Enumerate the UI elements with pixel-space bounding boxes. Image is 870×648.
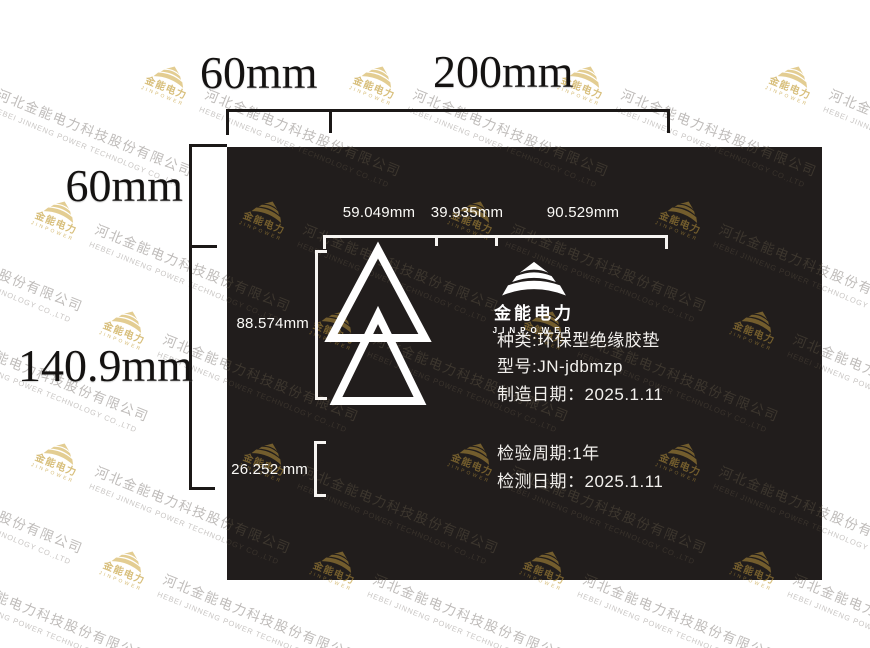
watermark-tile: 金能电力JINPOWER河北金能电力科技股份有限公司HEBEI JINNENG … bbox=[227, 147, 406, 193]
watermark-company-en: HEBEI JINNENG POWER TECHNOLOGY CO.,LTD bbox=[406, 147, 604, 192]
watermark-company-cn: 河北金能电力科技股份有限公司 bbox=[227, 147, 405, 180]
watermark-company-en: HEBEI JINNENG POWER TECHNOLOGY CO.,LTD bbox=[227, 482, 286, 569]
watermark-logo-en: JINPOWER bbox=[764, 85, 809, 108]
watermark-logo-en: JINPOWER bbox=[446, 462, 491, 485]
dim-label-side-140mm: 140.9mm bbox=[18, 341, 182, 391]
watermark-text: 河北金能电力科技股份有限公司HEBEI JINNENG POWER TECHNO… bbox=[227, 565, 364, 580]
dim-tick bbox=[189, 144, 227, 147]
watermark-mountain-icon bbox=[38, 435, 84, 468]
dim-label-90mm: 90.529mm bbox=[533, 204, 633, 222]
watermark-company-en: HEBEI JINNENG POWER TECHNOLOGY CO.,LTD bbox=[156, 590, 354, 648]
watermark-text: 河北金能电力科技股份有限公司HEBEI JINNENG POWER TECHNO… bbox=[0, 215, 88, 326]
watermark-logo: 金能电力JINPOWER bbox=[135, 55, 202, 110]
watermark-tile: 金能电力JINPOWER河北金能电力科技股份有限公司HEBEI JINNENG … bbox=[0, 432, 88, 570]
watermark-company-en: HEBEI JINNENG POWER TECHNOLOGY CO.,LTD bbox=[0, 590, 144, 648]
watermark-company-cn: 河北金能电力科技股份有限公司 bbox=[716, 218, 822, 315]
watermark-company-en: HEBEI JINNENG POWER TECHNOLOGY CO.,LTD bbox=[822, 105, 870, 192]
watermark-company-en: HEBEI JINNENG POWER TECHNOLOGY CO.,LTD bbox=[712, 240, 822, 327]
watermark-logo-en: JINPOWER bbox=[30, 462, 75, 485]
watermark-company-en: HEBEI JINNENG POWER TECHNOLOGY CO.,LTD bbox=[227, 240, 286, 327]
dim-tick bbox=[329, 109, 332, 133]
watermark-logo-cn: 金能电力 bbox=[731, 560, 776, 580]
watermark-tile: 金能电力JINPOWER河北金能电力科技股份有限公司HEBEI JINNENG … bbox=[759, 147, 822, 193]
watermark-logo-cn: 金能电力 bbox=[33, 210, 78, 237]
watermark-logo-en: JINPOWER bbox=[728, 570, 773, 580]
dim-tick bbox=[495, 235, 498, 246]
spec-line-test-date: 检测日期：2025.1.11 bbox=[497, 472, 663, 492]
watermark-text: 河北金能电力科技股份有限公司HEBEI JINNENG POWER TECHNO… bbox=[822, 80, 870, 191]
watermark-company-cn: 河北金能电力科技股份有限公司 bbox=[300, 460, 502, 557]
brand-logo: 金能电力 JINPOWER bbox=[484, 261, 584, 335]
dim-label-59mm: 59.049mm bbox=[329, 204, 429, 222]
watermark-company-cn: 河北金能电力科技股份有限公司 bbox=[580, 568, 782, 648]
watermark-company-en: HEBEI JINNENG POWER TECHNOLOGY CO.,LTD bbox=[576, 590, 774, 648]
watermark-logo-cn: 金能电力 bbox=[449, 452, 494, 479]
watermark-logo: 金能电力JINPOWER bbox=[513, 540, 580, 580]
watermark-logo-cn: 金能电力 bbox=[101, 560, 146, 587]
watermark-company-en: HEBEI JINNENG POWER TECHNOLOGY CO.,LTD bbox=[712, 482, 822, 569]
watermark-company-cn: 河北金能电力科技股份有限公司 bbox=[0, 460, 87, 557]
watermark-company-cn: 河北金能电力科技股份有限公司 bbox=[790, 328, 822, 425]
watermark-logo: 金能电力JINPOWER bbox=[303, 540, 370, 580]
mountain-icon bbox=[492, 261, 576, 298]
watermark-text: 河北金能电力科技股份有限公司HEBEI JINNENG POWER TECHNO… bbox=[0, 565, 154, 648]
dim-label-top-200mm: 200mm bbox=[433, 47, 569, 97]
double-triangle-symbol bbox=[317, 237, 442, 412]
watermark-text: 河北金能电力科技股份有限公司HEBEI JINNENG POWER TECHNO… bbox=[366, 565, 574, 580]
watermark-logo-en: JINPOWER bbox=[446, 220, 491, 243]
watermark-text: 河北金能电力科技股份有限公司HEBEI JINNENG POWER TECHNO… bbox=[296, 457, 504, 568]
watermark-logo-cn: 金能电力 bbox=[767, 75, 812, 102]
watermark-logo-cn: 金能电力 bbox=[351, 75, 396, 102]
watermark-company-cn: 河北金能电力科技股份有限公司 bbox=[826, 83, 870, 180]
watermark-logo: 金能电力JINPOWER bbox=[723, 540, 790, 580]
watermark-mountain-icon bbox=[246, 193, 292, 226]
mat-label-sheet: 金能电力JINPOWER河北金能电力科技股份有限公司HEBEI JINNENG … bbox=[227, 147, 822, 580]
watermark-mountain-icon bbox=[662, 193, 708, 226]
watermark-logo-cn: 金能电力 bbox=[657, 210, 702, 237]
watermark-company-cn: 河北金能电力科技股份有限公司 bbox=[410, 147, 612, 180]
watermark-text: 河北金能电力科技股份有限公司HEBEI JINNENG POWER TECHNO… bbox=[712, 215, 822, 326]
watermark-tile: 金能电力JINPOWER河北金能电力科技股份有限公司HEBEI JINNENG … bbox=[649, 190, 822, 328]
watermark-logo: 金能电力JINPOWER bbox=[343, 55, 410, 110]
watermark-logo-en: JINPOWER bbox=[238, 220, 283, 243]
watermark-logo-cn: 金能电力 bbox=[521, 560, 566, 580]
watermark-logo-en: JINPOWER bbox=[30, 220, 75, 243]
dim-label-side-60mm: 60mm bbox=[60, 161, 183, 211]
watermark-mountain-icon bbox=[148, 58, 194, 91]
watermark-logo-en: JINPOWER bbox=[98, 570, 143, 593]
watermark-mountain-icon bbox=[736, 543, 782, 576]
dim-line bbox=[226, 109, 670, 112]
watermark-tile: 金能电力JINPOWER河北金能电力科技股份有限公司HEBEI JINNENG … bbox=[0, 540, 154, 648]
dim-tick bbox=[667, 109, 670, 133]
watermark-logo-cn: 金能电力 bbox=[657, 452, 702, 479]
watermark-text: 河北金能电力科技股份有限公司HEBEI JINNENG POWER TECHNO… bbox=[712, 457, 822, 568]
watermark-text: 河北金能电力科技股份有限公司HEBEI JINNENG POWER TECHNO… bbox=[406, 147, 614, 192]
watermark-mountain-icon bbox=[772, 58, 818, 91]
watermark-logo-en: JINPOWER bbox=[308, 570, 353, 580]
watermark-logo-en: JINPOWER bbox=[348, 85, 393, 108]
dim-label-26mm: 26.252 mm bbox=[227, 461, 308, 479]
watermark-logo-cn: 金能电力 bbox=[33, 452, 78, 479]
watermark-mountain-icon bbox=[662, 435, 708, 468]
watermark-tile: 金能电力JINPOWER河北金能电力科技股份有限公司HEBEI JINNENG … bbox=[723, 540, 822, 580]
spec-line-type: 种类:环保型绝缘胶垫 bbox=[497, 331, 660, 351]
watermark-mountain-icon bbox=[106, 303, 152, 336]
watermark-logo: 金能电力JINPOWER bbox=[233, 190, 300, 245]
watermark-mountain-icon bbox=[454, 435, 500, 468]
watermark-text: 河北金能电力科技股份有限公司HEBEI JINNENG POWER TECHNO… bbox=[786, 325, 822, 436]
watermark-company-cn: 河北金能电力科技股份有限公司 bbox=[0, 218, 87, 315]
dim-tick bbox=[226, 109, 229, 135]
watermark-company-en: HEBEI JINNENG POWER TECHNOLOGY CO.,LTD bbox=[366, 590, 564, 648]
dim-tick bbox=[314, 441, 326, 444]
label-spec-drawing: 金能电力JINPOWER河北金能电力科技股份有限公司HEBEI JINNENG … bbox=[0, 0, 870, 648]
dim-label-39mm: 39.935mm bbox=[417, 204, 517, 222]
watermark-tile: 金能电力JINPOWER河北金能电力科技股份有限公司HEBEI JINNENG … bbox=[723, 300, 822, 438]
watermark-logo-cn: 金能电力 bbox=[241, 210, 286, 237]
watermark-logo-en: JINPOWER bbox=[518, 570, 563, 580]
watermark-tile: 金能电力JINPOWER河北金能电力科技股份有限公司HEBEI JINNENG … bbox=[513, 540, 784, 580]
watermark-company-en: HEBEI JINNENG POWER TECHNOLOGY CO.,LTD bbox=[0, 240, 78, 327]
watermark-tile: 金能电力JINPOWER河北金能电力科技股份有限公司HEBEI JINNENG … bbox=[551, 147, 822, 193]
dim-label-top-60mm: 60mm bbox=[200, 48, 315, 98]
watermark-logo: 金能电力JINPOWER bbox=[723, 300, 790, 355]
watermark-company-cn: 河北金能电力科技股份有限公司 bbox=[227, 218, 295, 315]
watermark-tile: 金能电力JINPOWER河北金能电力科技股份有限公司HEBEI JINNENG … bbox=[343, 147, 614, 193]
watermark-tile: 金能电力JINPOWER河北金能电力科技股份有限公司HEBEI JINNENG … bbox=[649, 432, 822, 570]
watermark-tile: 金能电力JINPOWER河北金能电力科技股份有限公司HEBEI JINNENG … bbox=[233, 432, 504, 570]
dim-tick bbox=[314, 494, 326, 497]
watermark-company-cn: 河北金能电力科技股份有限公司 bbox=[370, 568, 572, 648]
watermark-company-en: HEBEI JINNENG POWER TECHNOLOGY CO.,LTD bbox=[614, 147, 812, 192]
watermark-logo-en: JINPOWER bbox=[728, 330, 773, 353]
watermark-logo-cn: 金能电力 bbox=[731, 320, 776, 347]
watermark-text: 河北金能电力科技股份有限公司HEBEI JINNENG POWER TECHNO… bbox=[227, 147, 406, 192]
watermark-company-cn: 河北金能电力科技股份有限公司 bbox=[370, 568, 572, 580]
watermark-tile: 金能电力JINPOWER河北金能电力科技股份有限公司HEBEI JINNENG … bbox=[227, 432, 296, 570]
dim-label-88mm: 88.574mm bbox=[229, 315, 309, 333]
watermark-logo: 金能电力JINPOWER bbox=[759, 55, 826, 110]
dim-tick bbox=[665, 235, 668, 249]
dim-tick bbox=[189, 487, 215, 490]
watermark-logo: 金能电力JINPOWER bbox=[25, 432, 92, 487]
watermark-text: 河北金能电力科技股份有限公司HEBEI JINNENG POWER TECHNO… bbox=[786, 565, 822, 580]
watermark-logo: 金能电力JINPOWER bbox=[93, 540, 160, 595]
watermark-company-en: HEBEI JINNENG POWER TECHNOLOGY CO.,LTD bbox=[504, 482, 702, 569]
watermark-company-cn: 河北金能电力科技股份有限公司 bbox=[618, 147, 820, 180]
watermark-logo-en: JINPOWER bbox=[140, 85, 185, 108]
watermark-logo-cn: 金能电力 bbox=[143, 75, 188, 102]
watermark-text: 河北金能电力科技股份有限公司HEBEI JINNENG POWER TECHNO… bbox=[0, 457, 88, 568]
watermark-company-en: HEBEI JINNENG POWER TECHNOLOGY CO.,LTD bbox=[786, 350, 822, 437]
watermark-company-cn: 河北金能电力科技股份有限公司 bbox=[716, 460, 822, 557]
spec-line-manufacture-date: 制造日期：2025.1.11 bbox=[497, 385, 663, 405]
watermark-logo-en: JINPOWER bbox=[654, 220, 699, 243]
watermark-company-en: HEBEI JINNENG POWER TECHNOLOGY CO.,LTD bbox=[227, 147, 396, 192]
watermark-tile: 金能电力JINPOWER河北金能电力科技股份有限公司HEBEI JINNENG … bbox=[303, 540, 574, 580]
watermark-company-en: HEBEI JINNENG POWER TECHNOLOGY CO.,LTD bbox=[0, 482, 78, 569]
dim-tick bbox=[189, 245, 217, 248]
watermark-company-cn: 河北金能电力科技股份有限公司 bbox=[790, 568, 870, 648]
watermark-mountain-icon bbox=[356, 58, 402, 91]
watermark-logo-cn: 金能电力 bbox=[311, 560, 356, 580]
watermark-text: 河北金能电力科技股份有限公司HEBEI JINNENG POWER TECHNO… bbox=[227, 215, 296, 326]
spec-line-inspection-cycle: 检验周期:1年 bbox=[497, 444, 600, 464]
spec-line-model: 型号:JN-jdbmzp bbox=[497, 357, 623, 377]
watermark-text: 河北金能电力科技股份有限公司HEBEI JINNENG POWER TECHNO… bbox=[576, 565, 784, 580]
watermark-mountain-icon bbox=[526, 543, 572, 576]
brand-name-cn: 金能电力 bbox=[484, 299, 584, 324]
watermark-company-cn: 河北金能电力科技股份有限公司 bbox=[160, 568, 362, 648]
watermark-company-cn: 河北金能电力科技股份有限公司 bbox=[227, 568, 363, 580]
watermark-company-en: HEBEI JINNENG POWER TECHNOLOGY CO.,LTD bbox=[786, 590, 870, 648]
watermark-mountain-icon bbox=[736, 303, 782, 336]
watermark-company-cn: 河北金能电力科技股份有限公司 bbox=[580, 568, 782, 580]
watermark-company-cn: 河北金能电力科技股份有限公司 bbox=[0, 568, 153, 648]
watermark-company-cn: 河北金能电力科技股份有限公司 bbox=[790, 568, 822, 580]
watermark-mountain-icon bbox=[316, 543, 362, 576]
dim-line bbox=[189, 144, 192, 490]
watermark-tile: 金能电力JINPOWER河北金能电力科技股份有限公司HEBEI JINNENG … bbox=[227, 540, 364, 580]
watermark-text: 河北金能电力科技股份有限公司HEBEI JINNENG POWER TECHNO… bbox=[614, 147, 822, 192]
watermark-mountain-icon bbox=[106, 543, 152, 576]
watermark-tile: 金能电力JINPOWER河北金能电力科技股份有限公司HEBEI JINNENG … bbox=[227, 190, 296, 328]
dim-line bbox=[314, 441, 317, 497]
